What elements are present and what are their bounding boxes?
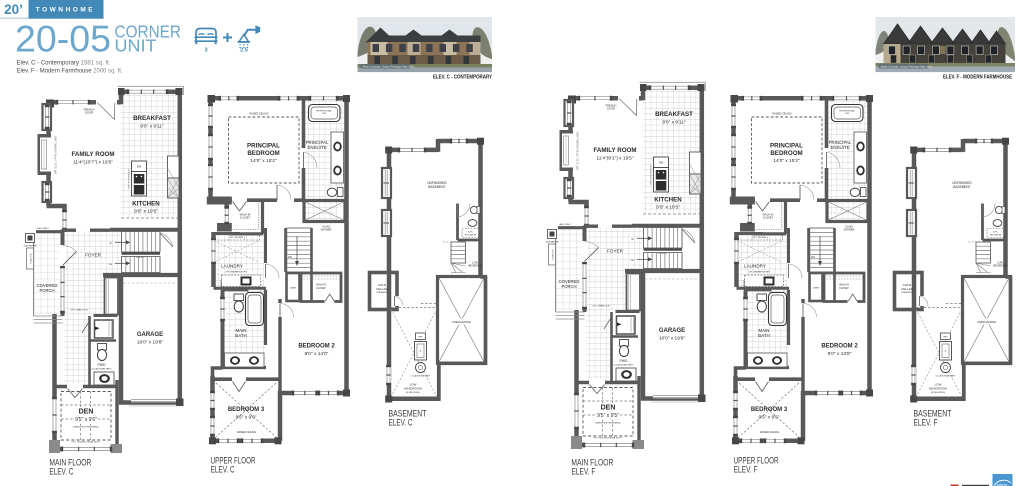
- svg-text:(LOCATION MAY VARY): (LOCATION MAY VARY): [614, 363, 634, 366]
- svg-text:CLOSET: CLOSET: [763, 216, 774, 220]
- svg-text:HALF WALL: HALF WALL: [37, 227, 50, 230]
- svg-text:11'4"(9'1") x 19'5": 11'4"(9'1") x 19'5": [596, 156, 633, 162]
- svg-text:Artist Concept. Colour Package: Artist Concept. Colour Package May Vary.: [881, 64, 933, 68]
- svg-text:(WINDOW IF REQUIRED): (WINDOW IF REQUIRED): [73, 426, 99, 428]
- svg-text:ROUGH-IN: ROUGH-IN: [465, 235, 476, 237]
- svg-text:HALF WALL: HALF WALL: [559, 223, 572, 226]
- svg-text:KITCHEN: KITCHEN: [132, 201, 160, 208]
- svg-text:CELLAR: CELLAR: [376, 287, 389, 291]
- svg-text:PWD: PWD: [98, 363, 106, 367]
- svg-text:BEDROOM 2: BEDROOM 2: [298, 344, 335, 350]
- svg-text:LAUNDRY: LAUNDRY: [221, 264, 243, 269]
- svg-text:(IF REQUIRED): (IF REQUIRED): [406, 392, 421, 394]
- svg-text:BASEMENT: BASEMENT: [953, 185, 971, 189]
- svg-text:GAS METER: GAS METER: [24, 245, 37, 248]
- svg-text:DOOR: DOOR: [85, 111, 93, 115]
- svg-text:3-PC: 3-PC: [993, 232, 998, 234]
- svg-text:(UNHEATED): (UNHEATED): [901, 291, 913, 294]
- svg-text:BEDROOM 2: BEDROOM 2: [821, 344, 858, 350]
- svg-text:TOWNHOME: TOWNHOME: [36, 7, 95, 14]
- svg-text:10'0" x 19'8": 10'0" x 19'8": [659, 336, 686, 342]
- svg-text:TUB: TUB: [845, 113, 850, 115]
- svg-text:9'0" x 10'5": 9'0" x 10'5": [656, 205, 680, 211]
- svg-text:OPT. 2/PATIO DR: OPT. 2/PATIO DR: [592, 305, 610, 308]
- svg-text:RAISED CEILING: RAISED CEILING: [237, 431, 256, 434]
- svg-text:ELEV. C - CONTEMPORARY: ELEV. C - CONTEMPORARY: [433, 75, 492, 81]
- svg-text:PWD: PWD: [620, 359, 628, 363]
- svg-text:HEADROOM: HEADROOM: [993, 265, 1007, 268]
- svg-text:PRINCIPAL: PRINCIPAL: [770, 143, 803, 150]
- svg-text:9'5" x 9'6": 9'5" x 9'6": [236, 414, 257, 420]
- svg-text:ELEV. F: ELEV. F: [571, 467, 595, 477]
- svg-text:CLOSET: CLOSET: [316, 287, 326, 290]
- svg-text:RAISED CEILING: RAISED CEILING: [772, 113, 791, 116]
- svg-text:FOYER: FOYER: [85, 253, 102, 258]
- svg-text:PLANTER: PLANTER: [30, 253, 33, 264]
- svg-text:ELEV. F: ELEV. F: [734, 465, 758, 475]
- svg-text:PRINCIPAL: PRINCIPAL: [247, 143, 280, 150]
- svg-text:DN: DN: [811, 255, 815, 259]
- svg-text:9'5" x 9'5": 9'5" x 9'5": [759, 414, 780, 420]
- svg-text:10'0" x 19'8": 10'0" x 19'8": [137, 340, 164, 346]
- svg-text:DN: DN: [631, 260, 635, 262]
- svg-text:Elev. F - Modern Farmhouse 20: Elev. F - Modern Farmhouse 2000 sq. ft.: [17, 68, 123, 75]
- svg-text:(IF REQUIRED): (IF REQUIRED): [931, 392, 946, 394]
- svg-text:OPT. KITCHEN EXT.: OPT. KITCHEN EXT.: [129, 168, 131, 189]
- svg-text:ELEV. C: ELEV. C: [49, 467, 73, 477]
- svg-text:LOCATION MAY VARY: LOCATION MAY VARY: [411, 375, 431, 378]
- svg-text:UNIT: UNIT: [115, 36, 157, 56]
- svg-text:DN: DN: [109, 264, 113, 266]
- svg-text:PORCH: PORCH: [561, 284, 576, 289]
- svg-text:BATH: BATH: [758, 333, 769, 338]
- svg-text:HRV: HRV: [418, 337, 423, 339]
- svg-text:(WINDOW IF REQUIRED): (WINDOW IF REQUIRED): [595, 422, 621, 424]
- svg-text:HEADROOM: HEADROOM: [404, 386, 422, 390]
- svg-text:GAS METER: GAS METER: [546, 241, 559, 244]
- svg-text:UP: UP: [631, 239, 635, 241]
- svg-text:2.5: 2.5: [240, 48, 248, 54]
- svg-text:9'5" x 9'5": 9'5" x 9'5": [597, 413, 619, 419]
- svg-text:CLOSET: CLOSET: [839, 287, 849, 290]
- svg-text:3: 3: [204, 48, 207, 54]
- svg-text:FOYER: FOYER: [607, 249, 624, 254]
- svg-text:(UNHEATED): (UNHEATED): [376, 291, 388, 294]
- svg-text:SHOWER: SHOWER: [321, 228, 332, 231]
- svg-text:BEDROOM 3: BEDROOM 3: [751, 407, 788, 413]
- svg-text:ELEV. C: ELEV. C: [211, 465, 235, 475]
- svg-text:CELLAR: CELLAR: [901, 287, 914, 291]
- svg-text:DW: DW: [137, 165, 142, 169]
- svg-text:DEN: DEN: [79, 409, 94, 416]
- svg-text:ELEV. F - MODERN FARMHOUSE: ELEV. F - MODERN FARMHOUSE: [943, 75, 1012, 81]
- svg-text:BASEMENT: BASEMENT: [428, 185, 446, 189]
- svg-text:RAISED CEILING: RAISED CEILING: [760, 431, 779, 434]
- svg-text:20’: 20’: [4, 2, 23, 17]
- svg-text:OPT. WASHER/DRYER: OPT. WASHER/DRYER: [225, 270, 247, 273]
- svg-text:DOOR: DOOR: [607, 107, 615, 111]
- svg-text:LAUNDRY: LAUNDRY: [744, 264, 766, 269]
- svg-text:BREAKFAST: BREAKFAST: [133, 115, 171, 122]
- svg-text:FAMILY ROOM: FAMILY ROOM: [72, 151, 115, 158]
- svg-text:LINEN: LINEN: [290, 288, 297, 290]
- svg-text:14'0" x 15'2": 14'0" x 15'2": [773, 158, 800, 164]
- svg-text:CLOSET: CLOSET: [240, 216, 251, 220]
- svg-text:PORCH: PORCH: [39, 288, 54, 293]
- svg-text:GARAGE: GARAGE: [659, 328, 685, 334]
- svg-text:ELEV. F: ELEV. F: [914, 418, 938, 428]
- svg-text:OPT. ELEC. F/P W/ DRYWALL ABV.: OPT. ELEC. F/P W/ DRYWALL ABV.: [55, 135, 58, 174]
- svg-text:PLANTER: PLANTER: [552, 249, 555, 260]
- svg-text:9'0" x 13'8": 9'0" x 13'8": [828, 351, 852, 357]
- svg-text:HEADROOM: HEADROOM: [929, 386, 947, 390]
- svg-text:(LOCATION MAY VARY): (LOCATION MAY VARY): [92, 367, 112, 370]
- svg-text:SHOWER: SHOWER: [844, 228, 855, 231]
- svg-text:KITCHEN: KITCHEN: [654, 197, 682, 204]
- svg-text:DEN: DEN: [601, 405, 616, 412]
- svg-text:ELEV. C: ELEV. C: [389, 418, 413, 428]
- svg-text:BREAKFAST: BREAKFAST: [655, 111, 693, 118]
- svg-text:OPT. 2/PATIO DR: OPT. 2/PATIO DR: [70, 309, 88, 312]
- svg-text:UP: UP: [109, 243, 113, 245]
- svg-text:FAMILY ROOM: FAMILY ROOM: [594, 147, 637, 154]
- svg-text:UNEXCAVATED: UNEXCAVATED: [452, 320, 471, 324]
- svg-text:9'0" x 9'11": 9'0" x 9'11": [140, 124, 164, 130]
- svg-text:14'0" x 15'2": 14'0" x 15'2": [250, 158, 277, 164]
- svg-text:Artist Concept. Colour Package: Artist Concept. Colour Package May Vary.: [363, 64, 415, 68]
- svg-text:BEDROOM: BEDROOM: [770, 150, 802, 157]
- svg-text:DW: DW: [659, 161, 664, 165]
- svg-text:BATH: BATH: [235, 333, 246, 338]
- svg-text:BEDROOM: BEDROOM: [247, 150, 279, 157]
- svg-text:OPT. DRYERS: OPT. DRYERS: [230, 237, 244, 239]
- svg-text:DN: DN: [288, 255, 292, 259]
- svg-text:ENSUITE: ENSUITE: [830, 145, 849, 150]
- svg-text:3-PC: 3-PC: [468, 232, 473, 234]
- svg-text:GARAGE: GARAGE: [137, 332, 163, 338]
- svg-text:20-05: 20-05: [15, 19, 111, 60]
- svg-text:9'0" x 9'11": 9'0" x 9'11": [662, 120, 686, 126]
- svg-text:TUB: TUB: [322, 113, 327, 115]
- svg-text:OPT. CEILING DETAIL AT FL.: OPT. CEILING DETAIL AT FL.: [593, 436, 622, 439]
- svg-text:OPT. KITCHEN EXT.: OPT. KITCHEN EXT.: [651, 164, 653, 185]
- svg-text:HEADROOM: HEADROOM: [468, 265, 482, 268]
- svg-text:HRV: HRV: [943, 337, 948, 339]
- svg-text:BEDROOM 3: BEDROOM 3: [228, 407, 265, 413]
- svg-text:LINEN: LINEN: [813, 288, 820, 290]
- svg-text:UNEXCAVATED: UNEXCAVATED: [977, 320, 996, 324]
- svg-text:OPT. WASHER/DRYER: OPT. WASHER/DRYER: [748, 270, 770, 273]
- svg-text:RAISED CEILING: RAISED CEILING: [249, 113, 268, 116]
- svg-text:OPT. ELEC. F/P W/ DRYWALL ABV.: OPT. ELEC. F/P W/ DRYWALL ABV.: [577, 131, 580, 170]
- svg-text:9'5" x 9'6": 9'5" x 9'6": [75, 417, 97, 423]
- svg-text:9'0" x 10'5": 9'0" x 10'5": [134, 209, 158, 215]
- svg-text:ENSUITE: ENSUITE: [307, 145, 326, 150]
- svg-text:LOCATION MAY VARY: LOCATION MAY VARY: [936, 375, 956, 378]
- svg-text:ROUGH-IN: ROUGH-IN: [990, 235, 1001, 237]
- svg-text:OPT. DRYERS: OPT. DRYERS: [753, 237, 767, 239]
- svg-text:9'0" x 14'0": 9'0" x 14'0": [305, 351, 329, 357]
- svg-text:OPT. CEILING DETAIL AT FL.: OPT. CEILING DETAIL AT FL.: [71, 440, 100, 443]
- svg-text:Elev. C - Contemporary 1981 s: Elev. C - Contemporary 1981 sq. ft.: [17, 60, 111, 67]
- svg-text:11'4"(10'7") x 19'5": 11'4"(10'7") x 19'5": [73, 160, 113, 166]
